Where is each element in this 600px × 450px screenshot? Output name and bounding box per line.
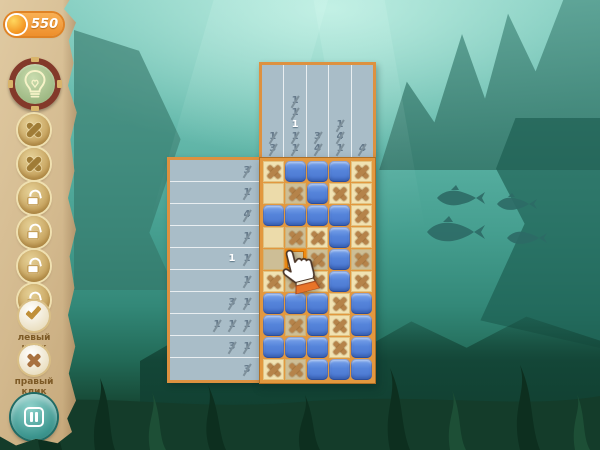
grid-cell[interactable] bbox=[351, 249, 372, 270]
right-click-mode-button[interactable] bbox=[19, 345, 49, 375]
clue-column: 141 bbox=[329, 65, 351, 157]
grid-cell[interactable] bbox=[329, 249, 350, 270]
clue-number: 4 bbox=[335, 131, 345, 142]
grid-cell[interactable] bbox=[329, 359, 350, 380]
grid-cell[interactable] bbox=[351, 315, 372, 336]
clue-row: 111 bbox=[170, 314, 259, 336]
clue-number: 3 bbox=[242, 165, 252, 176]
grid-cell[interactable] bbox=[307, 337, 328, 358]
clue-number: 1 bbox=[227, 319, 237, 330]
ring-notch bbox=[57, 80, 62, 88]
grid-cell[interactable] bbox=[329, 337, 350, 358]
coin-counter: 550 bbox=[5, 13, 63, 36]
clue-number: 3 bbox=[313, 131, 323, 142]
clue-number: 1 bbox=[290, 143, 300, 154]
checkmark-icon bbox=[25, 303, 42, 320]
lightbulb-icon bbox=[22, 69, 48, 101]
clue-row: 31 bbox=[170, 292, 259, 314]
grid-cell[interactable] bbox=[263, 227, 284, 248]
clue-number: 4 bbox=[357, 143, 367, 154]
lock-icon bbox=[27, 258, 41, 274]
pause-icon bbox=[24, 407, 44, 427]
grid-cell[interactable] bbox=[351, 337, 372, 358]
ring-notch bbox=[31, 57, 39, 62]
clue-column: 34 bbox=[307, 65, 329, 157]
clue-number: 1 bbox=[268, 131, 278, 142]
clue-number: 3 bbox=[227, 341, 237, 352]
grid-cell[interactable] bbox=[307, 359, 328, 380]
grid-cell[interactable] bbox=[351, 205, 372, 226]
grid-cell[interactable] bbox=[307, 161, 328, 182]
clue-column: 13 bbox=[262, 65, 284, 157]
grid-cell[interactable] bbox=[351, 183, 372, 204]
clue-row: 1 bbox=[170, 182, 259, 204]
coin-count: 550 bbox=[31, 17, 58, 32]
clue-row: 31 bbox=[170, 336, 259, 358]
locked-bonus-button[interactable] bbox=[18, 182, 50, 214]
row-clues: 314111131111313 bbox=[167, 157, 259, 383]
grid-cell[interactable] bbox=[285, 205, 306, 226]
clue-number: 1 bbox=[335, 119, 345, 130]
clue-row: 4 bbox=[170, 204, 259, 226]
grid-cell[interactable] bbox=[329, 315, 350, 336]
clue-number: 4 bbox=[313, 143, 323, 154]
locked-bonus-button[interactable] bbox=[18, 250, 50, 282]
clue-number: 1 bbox=[212, 319, 222, 330]
clue-number: 1 bbox=[227, 253, 237, 264]
clue-number: 3 bbox=[242, 364, 252, 375]
grid-cell[interactable] bbox=[329, 293, 350, 314]
grid-cell[interactable] bbox=[307, 183, 328, 204]
grid-cell[interactable] bbox=[263, 359, 284, 380]
grid-cell[interactable] bbox=[351, 227, 372, 248]
grid-cell[interactable] bbox=[307, 293, 328, 314]
grid-cell[interactable] bbox=[351, 271, 372, 292]
bonus-x-button[interactable] bbox=[18, 114, 50, 146]
clue-row: 3 bbox=[170, 160, 259, 182]
clue-column: 11111 bbox=[284, 65, 306, 157]
grid-cell[interactable] bbox=[329, 183, 350, 204]
grid-cell[interactable] bbox=[285, 161, 306, 182]
grid-cell[interactable] bbox=[263, 293, 284, 314]
clue-number: 1 bbox=[242, 341, 252, 352]
clue-row: 3 bbox=[170, 358, 259, 380]
grid-cell[interactable] bbox=[329, 161, 350, 182]
grid-cell[interactable] bbox=[285, 359, 306, 380]
clue-number: 3 bbox=[268, 143, 278, 154]
grid-cell[interactable] bbox=[285, 337, 306, 358]
clue-row: 1 bbox=[170, 270, 259, 292]
grid-cell[interactable] bbox=[307, 315, 328, 336]
grid-cell[interactable] bbox=[263, 315, 284, 336]
clue-number: 1 bbox=[290, 131, 300, 142]
clue-number: 3 bbox=[227, 297, 237, 308]
clue-number: 1 bbox=[242, 319, 252, 330]
locked-bonus-button[interactable] bbox=[18, 216, 50, 248]
column-clues: 1311111341414 bbox=[259, 62, 376, 157]
grid-cell[interactable] bbox=[263, 183, 284, 204]
pause-button[interactable] bbox=[11, 394, 57, 440]
grid-cell[interactable] bbox=[263, 337, 284, 358]
ring-notch bbox=[8, 80, 13, 88]
clue-number: 1 bbox=[242, 253, 252, 264]
clue-number: 1 bbox=[290, 107, 300, 118]
clue-column: 4 bbox=[352, 65, 373, 157]
clue-row: 11 bbox=[170, 248, 259, 270]
clue-row: 1 bbox=[170, 226, 259, 248]
fish-school-icon bbox=[415, 160, 575, 260]
clue-number: 1 bbox=[242, 231, 252, 242]
grid-cell[interactable] bbox=[329, 205, 350, 226]
sidebar-parchment: 550 левый клик правый клик bbox=[0, 0, 80, 450]
clue-number: 1 bbox=[242, 275, 252, 286]
left-click-mode-button[interactable] bbox=[19, 301, 49, 331]
lock-icon bbox=[27, 224, 41, 240]
coin-icon bbox=[7, 15, 26, 34]
clue-number: 1 bbox=[335, 143, 345, 154]
grid-cell[interactable] bbox=[351, 359, 372, 380]
lock-icon bbox=[27, 190, 41, 206]
clue-number: 1 bbox=[290, 95, 300, 106]
clue-number: 4 bbox=[242, 209, 252, 220]
grid-cell[interactable] bbox=[351, 161, 372, 182]
bonus-x-button[interactable] bbox=[18, 148, 50, 180]
grid-cell[interactable] bbox=[351, 293, 372, 314]
clue-number: 1 bbox=[242, 297, 252, 308]
hint-button[interactable] bbox=[9, 58, 61, 110]
clue-number: 1 bbox=[290, 119, 300, 130]
grid-cell[interactable] bbox=[285, 183, 306, 204]
grid-cell[interactable] bbox=[285, 315, 306, 336]
puzzle-grid bbox=[259, 157, 376, 384]
clue-number: 1 bbox=[242, 187, 252, 198]
grid-cell[interactable] bbox=[263, 161, 284, 182]
grid-cell[interactable] bbox=[307, 205, 328, 226]
game-screen: 550 левый клик правый клик 1311111341414 bbox=[0, 0, 600, 450]
ring-notch bbox=[31, 106, 39, 111]
grid-cell[interactable] bbox=[263, 205, 284, 226]
grid-cell[interactable] bbox=[329, 271, 350, 292]
grid-cell[interactable] bbox=[329, 227, 350, 248]
